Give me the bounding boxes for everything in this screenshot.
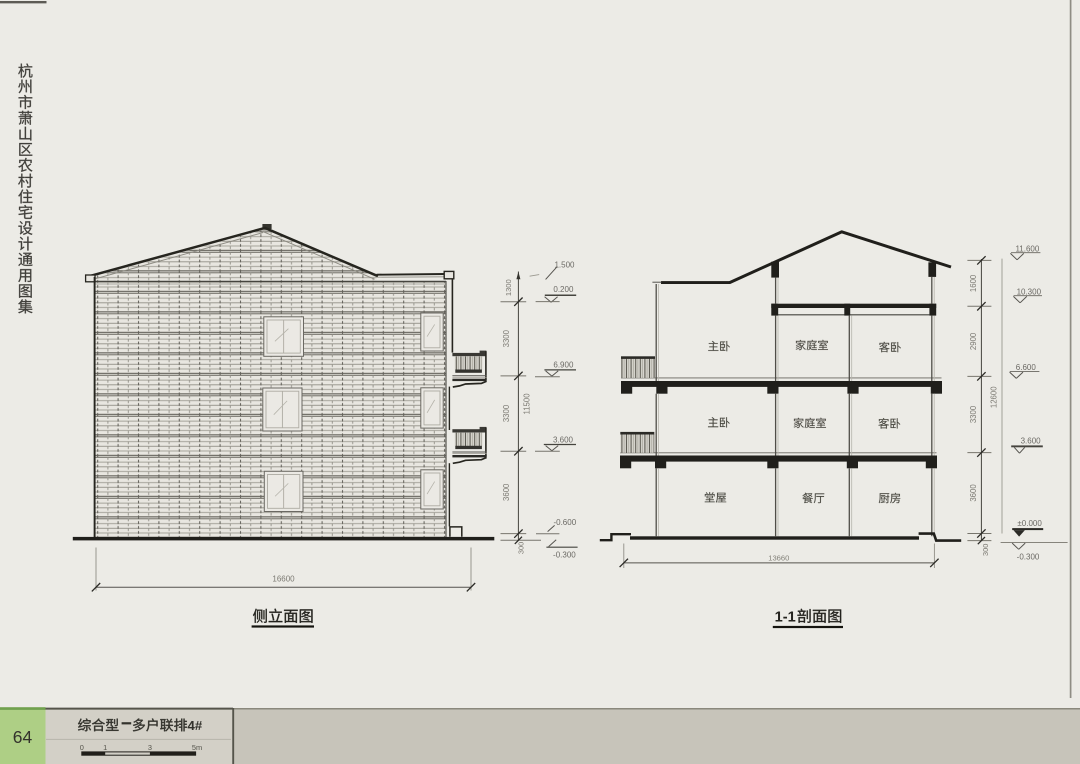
- svg-text:300: 300: [516, 542, 525, 554]
- svg-text:2900: 2900: [969, 332, 978, 350]
- svg-text:±0.000: ±0.000: [1017, 519, 1042, 528]
- svg-text:300: 300: [981, 544, 990, 556]
- svg-text:3600: 3600: [969, 484, 978, 502]
- svg-text:1600: 1600: [969, 274, 978, 292]
- svg-text:5m: 5m: [192, 743, 202, 752]
- svg-text:3.600: 3.600: [1021, 436, 1042, 445]
- svg-text:1-1: 1-1: [775, 609, 796, 625]
- svg-text:0: 0: [80, 743, 84, 752]
- svg-text:4#: 4#: [188, 718, 203, 733]
- svg-text:13660: 13660: [768, 554, 789, 563]
- svg-text:1300: 1300: [504, 279, 513, 296]
- svg-text:64: 64: [13, 727, 33, 747]
- svg-text:-0.300: -0.300: [1017, 552, 1040, 561]
- svg-text:1.500: 1.500: [554, 260, 575, 269]
- svg-text:3300: 3300: [502, 404, 511, 422]
- svg-text:11500: 11500: [523, 393, 532, 415]
- svg-text:6.600: 6.600: [1016, 363, 1037, 372]
- svg-text:10.300: 10.300: [1017, 287, 1042, 296]
- svg-text:3: 3: [148, 743, 152, 752]
- svg-text:-0.300: -0.300: [553, 550, 576, 559]
- svg-text:3600: 3600: [502, 483, 511, 501]
- svg-text:3300: 3300: [969, 405, 978, 423]
- svg-text:6.900: 6.900: [553, 361, 574, 370]
- svg-text:0.200: 0.200: [553, 285, 574, 294]
- svg-text:-0.600: -0.600: [553, 518, 576, 527]
- svg-text:16600: 16600: [272, 574, 295, 583]
- svg-text:1: 1: [103, 743, 107, 752]
- svg-text:3.600: 3.600: [553, 436, 574, 445]
- svg-text:12600: 12600: [989, 386, 998, 408]
- svg-text:3300: 3300: [502, 329, 511, 347]
- svg-text:11.600: 11.600: [1015, 244, 1039, 253]
